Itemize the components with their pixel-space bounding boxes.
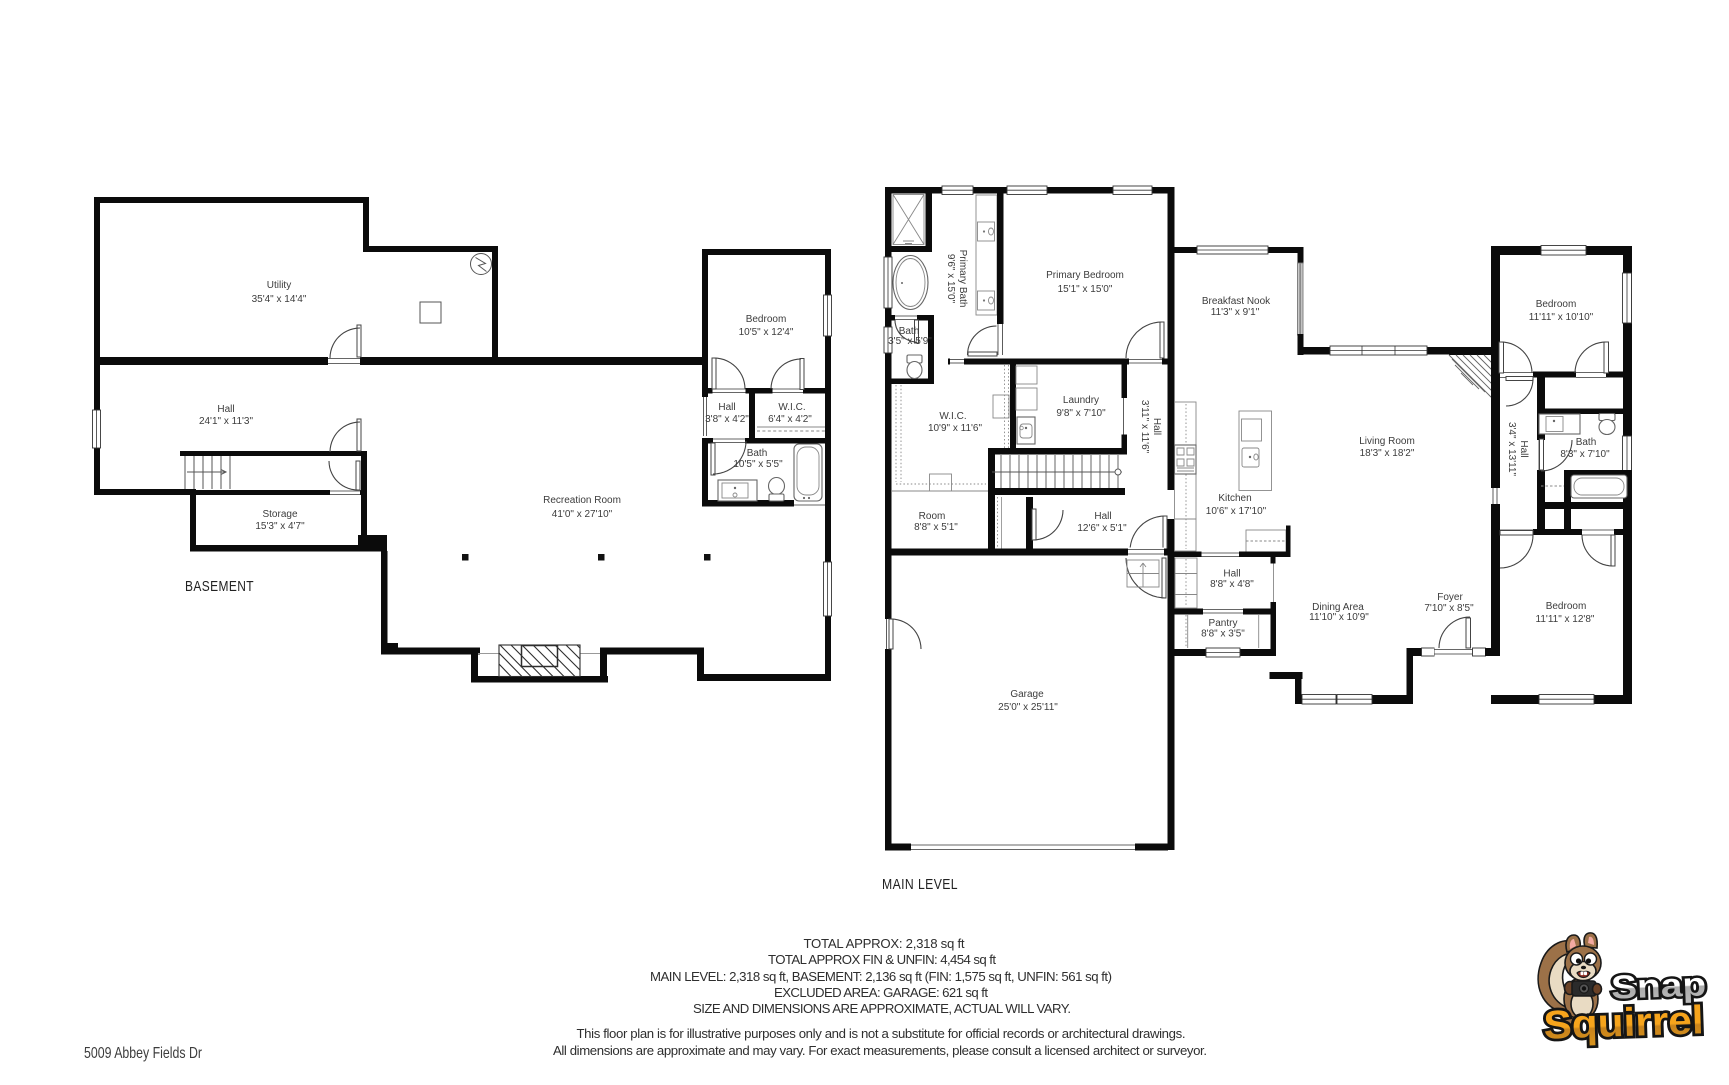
svg-text:35'4" x 14'4": 35'4" x 14'4" <box>252 294 307 305</box>
svg-text:8'8" x 4'8": 8'8" x 4'8" <box>1210 579 1254 590</box>
svg-text:3'11" x 11'6": 3'11" x 11'6" <box>1139 400 1150 454</box>
svg-text:10'5" x 5'5": 10'5" x 5'5" <box>733 459 783 470</box>
svg-text:EXCLUDED AREA: GARAGE: 621 sq: EXCLUDED AREA: GARAGE: 621 sq ft <box>774 985 988 1000</box>
svg-text:24'1" x 11'3": 24'1" x 11'3" <box>199 416 254 427</box>
svg-text:Hall: Hall <box>1223 569 1240 580</box>
svg-text:W.I.C.: W.I.C. <box>778 402 805 413</box>
svg-text:15'3" x 4'7": 15'3" x 4'7" <box>255 521 305 532</box>
svg-text:Bedroom: Bedroom <box>1546 601 1587 612</box>
svg-text:41'0" x 27'10": 41'0" x 27'10" <box>552 509 613 520</box>
svg-text:Laundry: Laundry <box>1063 395 1099 406</box>
svg-text:11'3" x 9'1": 11'3" x 9'1" <box>1211 307 1260 318</box>
svg-text:11'11" x 12'8": 11'11" x 12'8" <box>1536 614 1595 625</box>
svg-text:MAIN LEVEL: MAIN LEVEL <box>882 876 958 893</box>
svg-text:7'10" x 8'5": 7'10" x 8'5" <box>1424 603 1474 614</box>
svg-text:Foyer: Foyer <box>1437 592 1463 603</box>
svg-text:18'3" x 18'2": 18'3" x 18'2" <box>1360 448 1415 459</box>
svg-text:Room: Room <box>919 511 946 522</box>
svg-text:Hall: Hall <box>217 404 234 415</box>
svg-text:W.I.C.: W.I.C. <box>939 411 966 422</box>
svg-text:Bath: Bath <box>747 448 768 459</box>
svg-text:Storage: Storage <box>262 509 297 520</box>
svg-text:11'10" x 10'9": 11'10" x 10'9" <box>1309 612 1369 623</box>
svg-text:Breakfast Nook: Breakfast Nook <box>1202 296 1271 307</box>
svg-text:Bath: Bath <box>1576 437 1597 448</box>
svg-text:10'9" x 11'6": 10'9" x 11'6" <box>928 423 983 434</box>
svg-text:15'1" x 15'0": 15'1" x 15'0" <box>1058 284 1113 295</box>
svg-text:Living Room: Living Room <box>1359 436 1415 447</box>
svg-text:Kitchen: Kitchen <box>1218 493 1251 504</box>
svg-text:9'6" x 15'0": 9'6" x 15'0" <box>945 254 956 304</box>
svg-text:3'4" x 13'11": 3'4" x 13'11" <box>1506 422 1517 477</box>
svg-text:Squirrel: Squirrel <box>1543 998 1704 1048</box>
svg-text:3'5" x 5'9": 3'5" x 5'9" <box>888 336 932 347</box>
svg-text:This floor plan is for illustr: This floor plan is for illustrative purp… <box>577 1026 1186 1041</box>
svg-text:Primary Bedroom: Primary Bedroom <box>1046 270 1124 281</box>
svg-text:Bedroom: Bedroom <box>1536 299 1577 310</box>
svg-text:Hall: Hall <box>718 402 735 413</box>
svg-text:12'6" x 5'1": 12'6" x 5'1" <box>1077 523 1127 534</box>
svg-text:Hall: Hall <box>1094 511 1111 522</box>
svg-text:Bedroom: Bedroom <box>746 314 787 325</box>
svg-text:8'3" x 7'10": 8'3" x 7'10" <box>1560 449 1610 460</box>
svg-text:Hall: Hall <box>1151 418 1162 435</box>
svg-text:Utility: Utility <box>267 280 291 291</box>
svg-text:TOTAL APPROX FIN & UNFIN: 4,45: TOTAL APPROX FIN & UNFIN: 4,454 sq ft <box>768 952 996 967</box>
svg-text:Primary Bath: Primary Bath <box>957 250 968 308</box>
svg-text:Pantry: Pantry <box>1209 618 1238 629</box>
svg-text:SIZE AND DIMENSIONS ARE APPROX: SIZE AND DIMENSIONS ARE APPROXIMATE, ACT… <box>693 1001 1071 1016</box>
svg-text:BASEMENT: BASEMENT <box>185 578 254 595</box>
svg-text:TOTAL APPROX: 2,318 sq ft: TOTAL APPROX: 2,318 sq ft <box>804 936 965 951</box>
svg-text:8'8" x 5'1": 8'8" x 5'1" <box>914 522 958 533</box>
svg-text:10'6" x 17'10": 10'6" x 17'10" <box>1206 506 1267 517</box>
svg-text:All dimensions are approximate: All dimensions are approximate and may v… <box>553 1043 1207 1058</box>
svg-text:3'8" x 4'2": 3'8" x 4'2" <box>705 414 749 425</box>
svg-text:9'8" x 7'10": 9'8" x 7'10" <box>1056 408 1106 419</box>
svg-text:8'8" x 3'5": 8'8" x 3'5" <box>1201 629 1245 640</box>
svg-text:Hall: Hall <box>1518 440 1529 457</box>
svg-text:Garage: Garage <box>1010 689 1044 700</box>
svg-text:10'5" x 12'4": 10'5" x 12'4" <box>739 327 794 338</box>
svg-text:11'11" x 10'10": 11'11" x 10'10" <box>1529 312 1594 323</box>
svg-text:6'4" x 4'2": 6'4" x 4'2" <box>768 414 812 425</box>
svg-text:Recreation Room: Recreation Room <box>543 495 621 506</box>
svg-text:25'0" x 25'11": 25'0" x 25'11" <box>998 702 1058 713</box>
svg-text:5009 Abbey Fields Dr: 5009 Abbey Fields Dr <box>84 1045 203 1062</box>
svg-text:MAIN LEVEL: 2,318 sq ft, BASEM: MAIN LEVEL: 2,318 sq ft, BASEMENT: 2,136… <box>650 969 1112 984</box>
